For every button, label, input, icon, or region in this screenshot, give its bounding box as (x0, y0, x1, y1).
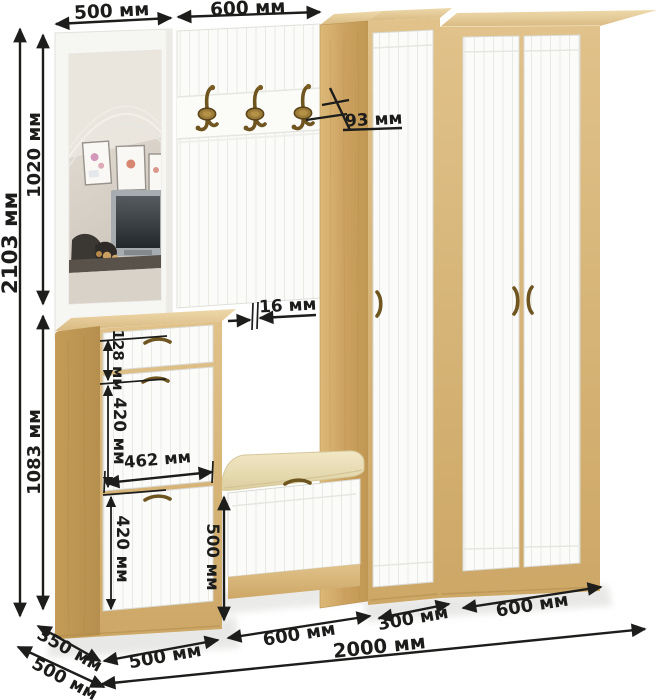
picture-frame (149, 154, 163, 196)
bench-flap (228, 479, 360, 577)
dim-hook-panel-width: 600 мм (178, 0, 320, 21)
dim-bench-width-label: 600 мм (261, 618, 337, 650)
bench (221, 451, 364, 599)
mirror-panel-edge (166, 29, 172, 336)
dim-lower-flap-height-label: 420 мм (113, 515, 132, 582)
tv (111, 190, 165, 256)
dim-upper-section-height: 1020 мм (24, 35, 45, 304)
dim-hook-projection-label: 93 мм (345, 109, 403, 132)
picture-frame (116, 146, 146, 191)
dim-mirror-width: 500 мм (56, 0, 171, 24)
wide-wardrobe-left-door (463, 36, 519, 571)
shoe-cabinet-side (55, 326, 100, 639)
wide-wardrobe (440, 10, 657, 598)
dim-mirror-width-label: 500 мм (74, 0, 150, 24)
wide-wardrobe-right-door (524, 35, 580, 567)
diagram-canvas: 500 мм 600 мм 2103 мм 1020 мм 1083 мм 93… (0, 0, 660, 700)
furniture-dimension-diagram: 500 мм 600 мм 2103 мм 1020 мм 1083 мм 93… (0, 0, 660, 700)
dim-total-height: 2103 мм (0, 29, 23, 616)
dim-lower-section-height: 1083 мм (24, 316, 45, 609)
dim-upper-section-height-label: 1020 мм (24, 112, 45, 198)
dim-total-width-label: 2000 мм (332, 630, 427, 663)
dim-lower-section-height-label: 1083 мм (24, 409, 45, 495)
narrow-wardrobe (368, 8, 452, 605)
dim-total-height-label: 2103 мм (0, 192, 23, 294)
coat-hook-panel (177, 24, 320, 308)
mirror (69, 50, 165, 304)
mirror-panel (55, 29, 172, 340)
dim-hook-panel-width-label: 600 мм (210, 0, 286, 21)
picture-frame (83, 141, 112, 185)
dim-bench-height-label: 500 мм (203, 523, 222, 590)
dim-drawer-height-label: 128 мм (109, 329, 127, 390)
dim-panel-thickness-label: 16 мм (259, 295, 317, 318)
